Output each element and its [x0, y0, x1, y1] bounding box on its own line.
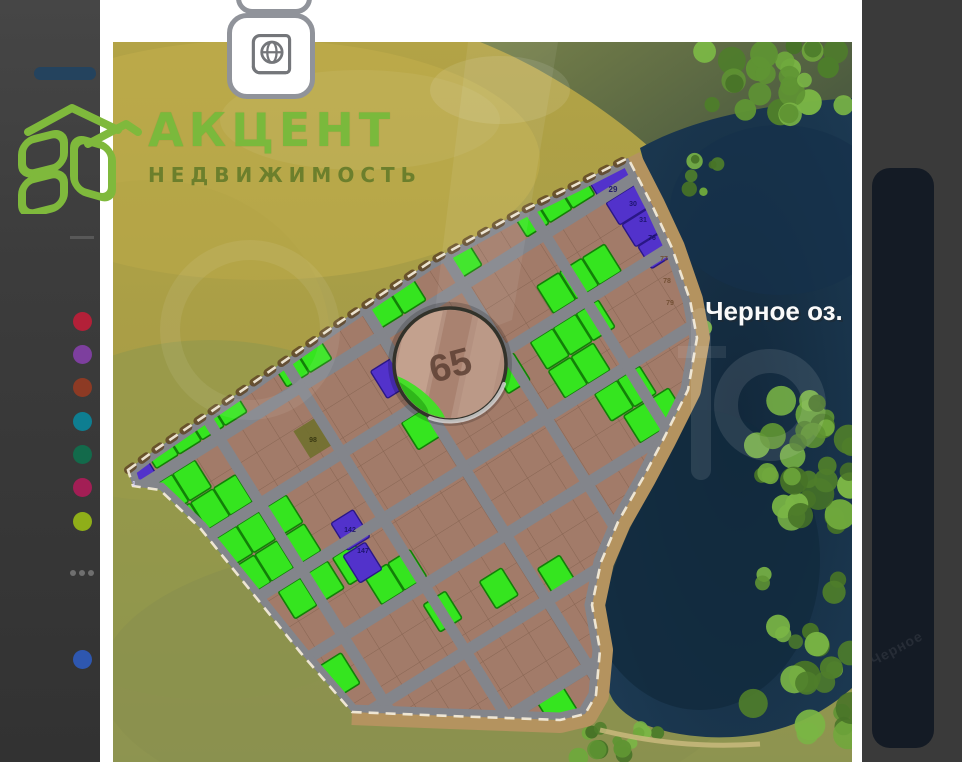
tree [795, 671, 818, 694]
tree [685, 170, 697, 182]
legend-dot [73, 345, 92, 364]
plot-number: 147 [357, 548, 369, 555]
tree [704, 97, 719, 112]
logo-title: АКЦЕНТ [148, 106, 422, 154]
plot-number: 30 [629, 201, 637, 208]
legend-dot [73, 445, 92, 464]
tree [822, 581, 845, 604]
tree [725, 74, 743, 92]
tree [748, 83, 771, 106]
accent-bar [34, 67, 96, 80]
cube-boxes-icon [14, 92, 142, 214]
tree [691, 155, 700, 164]
tree [766, 615, 790, 639]
plot-number: 29 [609, 185, 618, 194]
legend-dot [73, 650, 92, 669]
lake-label: Черное оз. Черное оз. [705, 296, 845, 328]
agency-watermark: АКЦЕНТ НЕДВИЖИМОСТЬ [14, 92, 422, 214]
tree [797, 73, 812, 88]
tree [612, 736, 622, 746]
tree [766, 386, 796, 416]
tree [817, 57, 839, 79]
legend-dot [73, 512, 92, 531]
dim-lake-label: Черное [872, 628, 925, 669]
tree [788, 503, 813, 528]
legend-dot [73, 412, 92, 431]
tree [739, 689, 768, 718]
tree [818, 457, 837, 476]
tree [757, 463, 777, 483]
tree [788, 634, 803, 649]
legend-dot [73, 312, 92, 331]
plot-number: 142 [344, 527, 356, 534]
mini-dot [79, 570, 85, 576]
plot-number: 78 [663, 278, 671, 285]
tree [709, 161, 717, 169]
right-dimmed-strip[interactable]: Черное [862, 0, 962, 762]
plot-number: 31 [639, 217, 647, 224]
logo-subtitle: НЕДВИЖИМОСТЬ [148, 163, 422, 187]
gallery-viewer: { "window": {"width": 962, "height": 762… [0, 0, 962, 762]
mini-dot [70, 570, 76, 576]
tree [779, 104, 798, 123]
cropped-plan-icon [236, 0, 312, 14]
mini-dot [88, 570, 94, 576]
globe-book-glyph [245, 30, 297, 82]
tree [587, 740, 606, 759]
tree [755, 575, 770, 590]
legend-dot [73, 378, 92, 397]
plot-number: 79 [666, 300, 674, 307]
plot-number: 98 [309, 437, 317, 444]
tree [699, 188, 707, 196]
tree [682, 181, 697, 196]
plot-number: 1 [132, 481, 136, 488]
tree [795, 709, 826, 740]
next-photo-dim-card[interactable]: Черное [872, 168, 934, 748]
tree [783, 468, 801, 486]
globe-book-icon [227, 13, 315, 99]
plot-number: 77 [660, 256, 668, 263]
legend-dot [73, 478, 92, 497]
plot-number: 76 [648, 235, 656, 242]
svg-text:Черное оз.: Черное оз. [705, 296, 843, 326]
faint-text-remnant [70, 236, 94, 239]
tree [805, 632, 829, 656]
